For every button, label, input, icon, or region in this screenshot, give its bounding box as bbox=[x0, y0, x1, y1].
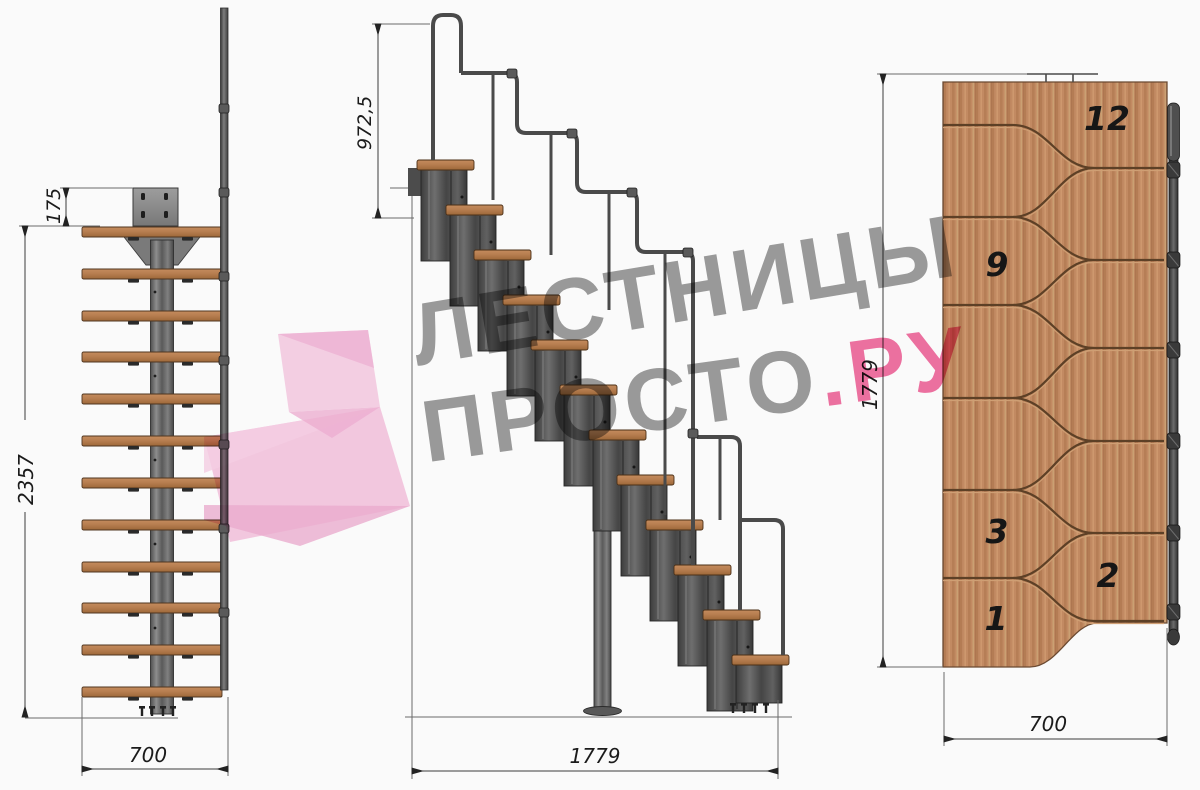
front-view: 175 2357 700 bbox=[14, 8, 229, 776]
brand-logo-icon bbox=[204, 330, 410, 546]
front-dim-2357: 2357 bbox=[14, 226, 38, 717]
step-label-2: 2 bbox=[1097, 556, 1120, 595]
side-dim-length-label: 1779 bbox=[570, 744, 621, 768]
staircase-technical-drawing: 175 2357 700 bbox=[0, 0, 1200, 790]
front-handrail-post bbox=[219, 8, 229, 690]
plan-top-bracket bbox=[1027, 74, 1098, 82]
side-dim-handrail-label: 972,5 bbox=[354, 96, 376, 150]
front-dim-width-label: 700 bbox=[129, 743, 167, 767]
step-label-1: 1 bbox=[985, 599, 1008, 638]
step-label-9: 9 bbox=[986, 245, 1009, 284]
watermark-line2-pink: .РУ bbox=[812, 306, 976, 425]
front-dim-175: 175 bbox=[19, 188, 133, 226]
front-column bbox=[124, 237, 200, 714]
front-dim-height-label: 2357 bbox=[14, 454, 38, 505]
front-mounting-plate bbox=[133, 188, 178, 226]
step-label-12: 12 bbox=[1084, 99, 1130, 138]
watermark: ЛЕСТНИЦЫ ПРОСТО.РУ bbox=[204, 195, 976, 546]
plan-dim-width-label: 700 bbox=[1029, 712, 1067, 736]
step-label-3: 3 bbox=[986, 512, 1009, 551]
plan-handrail bbox=[1167, 103, 1180, 645]
front-dim-offset-label: 175 bbox=[43, 188, 65, 224]
